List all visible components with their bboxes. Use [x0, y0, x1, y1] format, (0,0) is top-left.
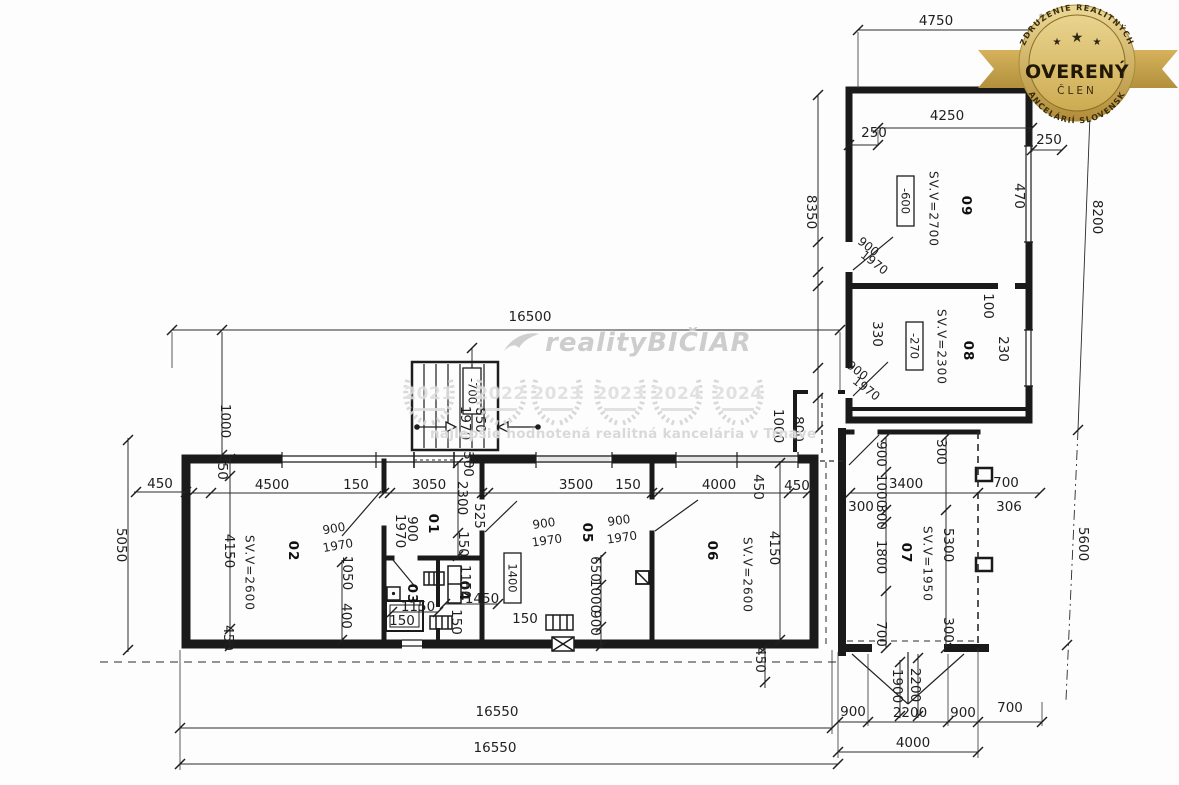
badge-star-icon: ★: [1053, 37, 1062, 48]
award-year: 2023: [592, 384, 648, 404]
badge-title: OVERENÝ: [1025, 59, 1129, 83]
dim-label: 150: [455, 531, 471, 557]
dim-label: 3500: [559, 477, 593, 493]
room-label: 08: [960, 341, 976, 362]
award-caption: [722, 408, 754, 411]
dim-label: 5050: [113, 528, 129, 562]
dim-label: 4000: [702, 477, 736, 493]
dim-label: 5600: [1075, 527, 1091, 561]
dim-label: 150: [343, 477, 369, 493]
award-wreath: 2024: [649, 372, 705, 426]
dim-label: 300: [460, 451, 476, 477]
dim-label: 1800: [873, 540, 889, 574]
award-wreath: 2023: [592, 372, 648, 426]
plan-walls: [186, 90, 1029, 652]
award-wreath: 2023: [529, 372, 585, 426]
dim-label: 4000: [896, 735, 930, 751]
height-label: SV.V=2600: [741, 537, 755, 613]
badge-star-icon: ★: [1093, 37, 1102, 48]
level-label: -270: [908, 333, 922, 359]
room-label: 01: [425, 514, 441, 535]
dim-label: 1000: [587, 579, 603, 613]
dim-label: 2200: [907, 668, 923, 702]
dim-label: 450: [784, 478, 810, 494]
height-label: SV.V=1950: [921, 526, 935, 602]
dim-label: 8350: [803, 195, 819, 229]
dim-label: 16550: [476, 704, 519, 720]
dim-label: 1900: [889, 669, 905, 703]
dim-label: 700: [997, 700, 1023, 716]
badge-subtitle: ČLEN: [1057, 84, 1097, 97]
room-label: 05: [579, 523, 595, 544]
dim-label: 8200: [1089, 200, 1105, 234]
award-year: 2023: [529, 384, 585, 404]
door-label: 900: [607, 512, 632, 529]
award-caption: [661, 408, 693, 411]
dim-label: 450: [752, 647, 768, 673]
room-label: 09: [958, 196, 974, 217]
badge-arc-bottom-text: KANCELÁRIÍ SLOVENSKA: [0, 0, 1127, 125]
award-caption: [485, 408, 517, 411]
dim-label: 2300: [454, 481, 470, 515]
dim-label: 150: [389, 613, 415, 629]
award-wreath: 2022: [473, 372, 529, 426]
dim-label: 700: [873, 621, 889, 647]
dim-label: 150: [512, 611, 538, 627]
award-year: 2024: [710, 384, 766, 404]
door-label: 900: [532, 515, 557, 532]
dim-label: 4150: [766, 531, 782, 565]
dim-label: 150: [615, 477, 641, 493]
award-year: 2024: [649, 384, 705, 404]
dim-label: 16550: [474, 740, 517, 756]
award-caption: [541, 408, 573, 411]
dim-label: 306: [996, 499, 1022, 515]
verified-member-badge: ZDRUŽENIE REALITNÝCH KANCELÁRIÍ SLOVENSK…: [0, 0, 1179, 150]
dim-label: 525: [471, 503, 487, 529]
award-year: 2021: [401, 384, 457, 404]
level-label: 1400: [506, 563, 520, 592]
door-label: 1970: [531, 531, 563, 549]
room-label: 02: [285, 541, 301, 562]
dim-label: 2200: [893, 705, 927, 721]
dim-label: 900: [840, 704, 866, 720]
award-wreath: 2024: [710, 372, 766, 426]
dim-label: 100: [980, 293, 996, 319]
level-label: -600: [899, 188, 913, 214]
dim-label: 1000: [217, 404, 233, 438]
dim-label: 300: [873, 504, 889, 530]
dim-label: 450: [214, 454, 230, 480]
dim-label: 330: [869, 321, 885, 347]
dim-label: 4500: [255, 477, 289, 493]
dim-label: 450: [220, 625, 236, 651]
badge-star-icon: ★: [1071, 30, 1084, 46]
dim-label: 300: [940, 617, 956, 643]
dim-label: 900: [404, 516, 420, 542]
dim-label: 150: [448, 609, 464, 635]
dim-label: 300: [933, 439, 949, 465]
dim-label: 5300: [940, 528, 956, 562]
dim-label: 470: [1011, 183, 1027, 209]
svg-text:KANCELÁRIÍ SLOVENSKA: KANCELÁRIÍ SLOVENSKA: [0, 0, 1127, 125]
height-label: SV.V=2300: [935, 309, 949, 385]
room-label: 06: [704, 541, 720, 562]
dim-label: 450: [147, 476, 173, 492]
dim-label: 3400: [889, 476, 923, 492]
award-caption: [413, 408, 445, 411]
dim-label: 1000: [873, 474, 889, 508]
door-label: 1970: [606, 528, 638, 546]
dim-label: 230: [995, 336, 1011, 362]
bird-icon: [502, 329, 540, 357]
watermark-brand: realityBIČIAR: [502, 328, 752, 358]
dim-label: 1150: [457, 565, 473, 599]
height-label: SV.V=2600: [243, 535, 257, 611]
award-year: 2022: [473, 384, 529, 404]
dim-label: 1050: [339, 556, 355, 590]
dim-label: 900: [587, 610, 603, 636]
dim-label: 300: [848, 499, 874, 515]
room-label: 07: [898, 543, 914, 564]
badge-medal: ZDRUŽENIE REALITNÝCH KANCELÁRIÍ SLOVENSK…: [0, 0, 1136, 125]
dim-label: 400: [338, 603, 354, 629]
dim-label: 16500: [509, 309, 552, 325]
award-wreath: 2021: [401, 372, 457, 426]
dim-label: 4150: [221, 534, 237, 568]
dim-label: 900: [950, 705, 976, 721]
watermark-tagline: najlepšie hodnotená realitná kancelária …: [430, 426, 760, 442]
dim-label: 450: [750, 474, 766, 500]
watermark-brand-text: realityBIČIAR: [545, 328, 752, 358]
dim-label: 700: [993, 475, 1019, 491]
height-label: SV.V=2700: [927, 171, 941, 247]
dim-label: 3050: [412, 477, 446, 493]
dim-label: 900: [873, 441, 889, 467]
award-caption: [604, 408, 636, 411]
door-label: 1970: [850, 374, 883, 404]
floor-plan-page: 010203040506070809SV.V=2700SV.V=2300SV.V…: [0, 0, 1179, 785]
door-label: 1970: [322, 536, 355, 555]
